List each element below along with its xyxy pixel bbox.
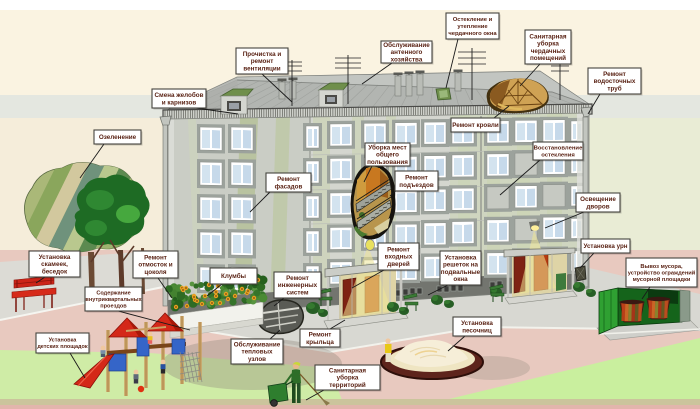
svg-text:Ремонт кровли: Ремонт кровли xyxy=(452,122,499,129)
svg-text:песочниц: песочниц xyxy=(462,327,492,334)
svg-text:дворов: дворов xyxy=(586,203,609,210)
svg-text:антенного: антенного xyxy=(391,49,423,56)
svg-text:Установка: Установка xyxy=(445,254,477,261)
svg-text:Ремонт: Ремонт xyxy=(277,176,300,183)
svg-text:Восстановление: Восстановление xyxy=(534,146,583,152)
svg-text:детских площадок: детских площадок xyxy=(37,344,88,350)
svg-text:мусорной площадки: мусорной площадки xyxy=(633,276,691,283)
svg-text:Уборка мест: Уборка мест xyxy=(368,143,406,151)
svg-text:Содержание: Содержание xyxy=(96,290,130,296)
svg-text:Прочистка и: Прочистка и xyxy=(243,51,282,58)
svg-text:беседок: беседок xyxy=(42,268,68,276)
svg-text:тепловых: тепловых xyxy=(242,349,273,356)
svg-text:дверей: дверей xyxy=(387,260,410,268)
svg-text:Установка: Установка xyxy=(39,254,71,261)
svg-text:Ремонт: Ремонт xyxy=(144,254,167,261)
svg-text:общего: общего xyxy=(376,151,399,159)
svg-text:подвальные: подвальные xyxy=(441,269,481,276)
svg-text:Ремонт: Ремонт xyxy=(286,275,309,282)
svg-text:внутриквартальных: внутриквартальных xyxy=(85,297,142,303)
svg-text:подъездов: подъездов xyxy=(399,182,434,189)
svg-text:входных: входных xyxy=(385,254,413,261)
svg-text:Обслуживание: Обслуживание xyxy=(383,41,430,49)
svg-text:Установка: Установка xyxy=(461,320,493,327)
svg-text:чердачных: чердачных xyxy=(531,48,566,55)
svg-text:Остекление и: Остекление и xyxy=(453,17,493,23)
svg-text:Санитарная: Санитарная xyxy=(529,33,567,40)
svg-text:пользования: пользования xyxy=(367,159,408,166)
svg-text:Клумбы: Клумбы xyxy=(221,272,246,280)
svg-text:Ремонт: Ремонт xyxy=(309,332,332,339)
svg-text:хозяйства: хозяйства xyxy=(391,56,423,64)
svg-text:уборка: уборка xyxy=(537,40,559,48)
svg-text:фасадов: фасадов xyxy=(275,183,303,190)
svg-text:уборка: уборка xyxy=(337,374,359,382)
svg-text:Вывоз мусора,: Вывоз мусора, xyxy=(640,264,683,270)
svg-text:скамеек,: скамеек, xyxy=(41,261,68,268)
svg-text:инженерных: инженерных xyxy=(278,282,318,289)
svg-text:проездов: проездов xyxy=(100,304,127,310)
svg-text:цоколя: цоколя xyxy=(144,269,166,276)
svg-text:водосточных: водосточных xyxy=(594,78,636,85)
svg-text:Ремонт: Ремонт xyxy=(405,175,428,182)
svg-text:чердачного окна: чердачного окна xyxy=(448,31,497,37)
svg-text:окна: окна xyxy=(453,276,468,283)
svg-text:Ремонт: Ремонт xyxy=(603,71,626,78)
svg-text:труб: труб xyxy=(607,85,621,93)
svg-text:Смена желобов: Смена желобов xyxy=(154,91,203,99)
svg-text:помещений: помещений xyxy=(530,54,566,62)
svg-text:ремонт: ремонт xyxy=(251,58,274,65)
svg-text:решеток на: решеток на xyxy=(443,262,479,269)
svg-text:узлов: узлов xyxy=(248,356,266,363)
svg-text:Ремонт: Ремонт xyxy=(387,246,410,253)
svg-text:систем: систем xyxy=(286,290,308,297)
svg-text:Освещение: Освещение xyxy=(580,196,616,203)
svg-text:Озеленение: Озеленение xyxy=(99,134,137,141)
svg-text:устройство ограждений: устройство ограждений xyxy=(628,270,696,277)
svg-text:Установка: Установка xyxy=(49,338,78,344)
svg-text:территорий: территорий xyxy=(329,381,366,389)
svg-text:утепление: утепление xyxy=(457,24,488,30)
svg-text:Санитарная: Санитарная xyxy=(329,367,367,374)
svg-text:и карнизов: и карнизов xyxy=(162,99,197,106)
svg-text:вентиляции: вентиляции xyxy=(243,66,280,73)
svg-text:Обслуживание: Обслуживание xyxy=(234,340,281,348)
svg-text:остекления: остекления xyxy=(541,153,575,159)
svg-text:крыльца: крыльца xyxy=(306,339,334,346)
svg-text:отмосток и: отмосток и xyxy=(138,262,172,269)
svg-text:Установка урн: Установка урн xyxy=(583,243,627,250)
